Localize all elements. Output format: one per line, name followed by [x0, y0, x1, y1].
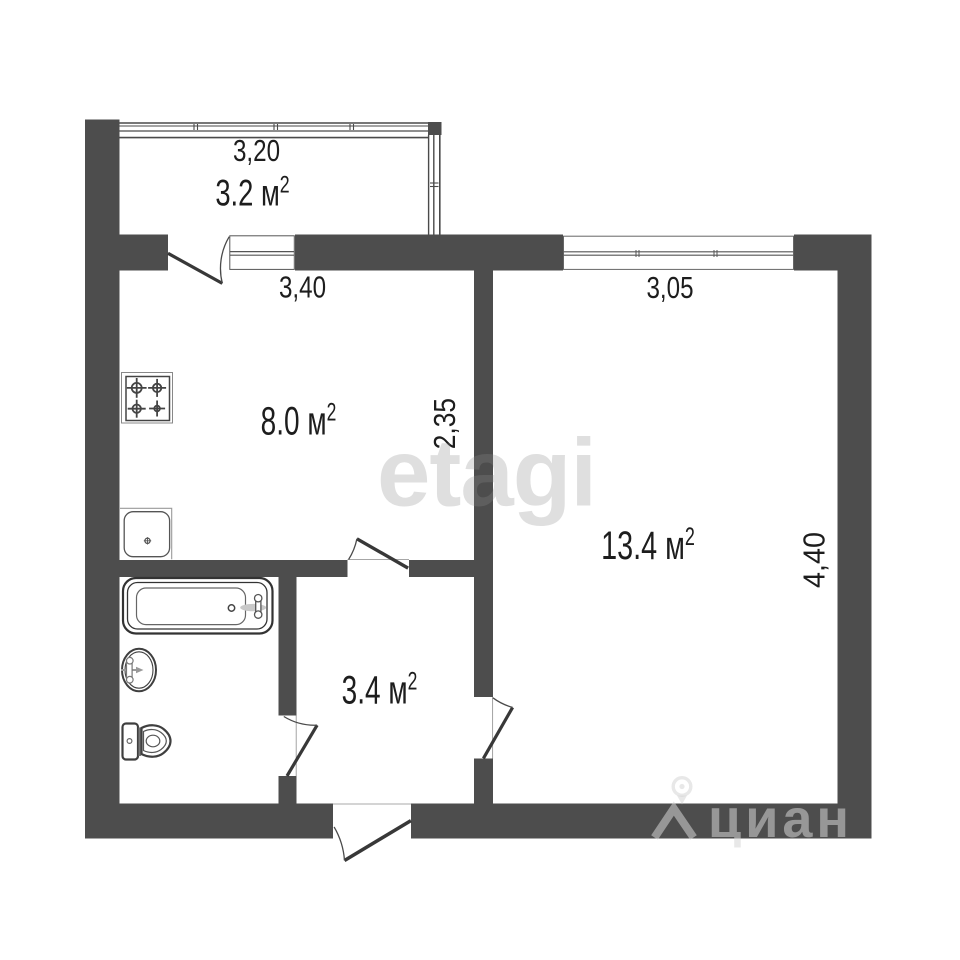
svg-text:3,20: 3,20	[233, 133, 280, 168]
svg-text:3,40: 3,40	[279, 270, 326, 305]
svg-text:8.0 м2: 8.0 м2	[261, 397, 337, 443]
svg-text:etagi: etagi	[377, 420, 596, 527]
svg-text:13.4 м2: 13.4 м2	[601, 522, 695, 568]
svg-text:3.2 м2: 3.2 м2	[215, 172, 289, 213]
svg-text:циан: циан	[708, 789, 853, 849]
svg-text:3,05: 3,05	[646, 270, 693, 305]
svg-text:3.4 м2: 3.4 м2	[342, 666, 418, 712]
svg-text:4,40: 4,40	[798, 532, 832, 588]
